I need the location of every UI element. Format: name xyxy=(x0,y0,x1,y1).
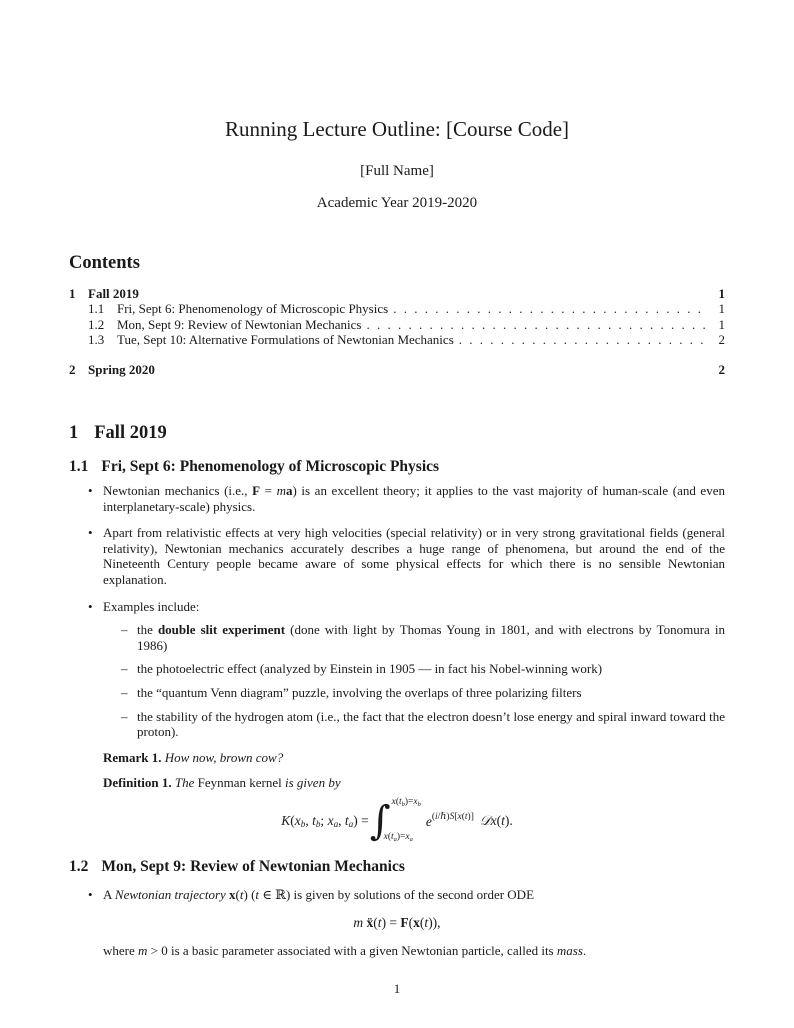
subsection-heading-1-1: 1.1Fri, Sept 6: Phenomenology of Microsc… xyxy=(69,457,725,476)
toc-label: Fall 2019 xyxy=(88,286,139,301)
page-title: Running Lecture Outline: [Course Code] xyxy=(69,116,725,142)
dash-icon: – xyxy=(121,661,128,677)
document-page: Running Lecture Outline: [Course Code] [… xyxy=(0,0,794,1028)
list-item: • Newtonian mechanics (i.e., F = ma) is … xyxy=(69,483,725,514)
continuation-paragraph: where m > 0 is a basic parameter associa… xyxy=(69,943,725,959)
integral: ∫ x(tb)=xb x(ta)=xa xyxy=(370,797,421,845)
toc-number: 2 xyxy=(69,362,88,377)
toc-number: 1.2 xyxy=(88,317,117,332)
feynman-kernel-equation: K(xb, tb; xa, ta) = ∫ x(tb)=xb x(ta)=xa … xyxy=(69,795,725,847)
paragraph-text: Newtonian mechanics (i.e., F = ma) is an… xyxy=(103,483,725,514)
integral-upper-limit: x(tb)=xb xyxy=(392,797,421,810)
subsection-title: Mon, Sept 9: Review of Newtonian Mechani… xyxy=(101,858,405,875)
subsection-number: 1.2 xyxy=(69,857,88,876)
subsection-number: 1.1 xyxy=(69,457,88,476)
bullet-icon: • xyxy=(88,599,93,615)
section-number: 1 xyxy=(69,422,78,444)
subsection-title: Fri, Sept 6: Phenomenology of Microscopi… xyxy=(101,458,439,475)
dash-icon: – xyxy=(121,709,128,725)
section-heading-fall-2019: 1Fall 2019 xyxy=(69,422,725,444)
toc-page-number: 1 xyxy=(713,286,725,301)
list-item: • Examples include: xyxy=(69,599,725,615)
toc-leader-dots: . . . . . . . . . . . . . . . . . . . . … xyxy=(366,317,708,332)
toc-entry-1-3[interactable]: 1.3 Tue, Sept 10: Alternative Formulatio… xyxy=(69,332,725,347)
bullet-icon: • xyxy=(88,525,93,541)
toc-leader-dots: . . . . . . . . . . . . . . . . . . . . … xyxy=(459,332,708,347)
toc-label: Fri, Sept 6: Phenomenology of Microscopi… xyxy=(117,301,388,316)
page-content: Running Lecture Outline: [Course Code] [… xyxy=(69,0,725,958)
toc-entry-1-1[interactable]: 1.1 Fri, Sept 6: Phenomenology of Micros… xyxy=(69,301,725,316)
list-item: • A Newtonian trajectory x(t) (t ∈ ℝ) is… xyxy=(69,887,725,903)
toc-number: 1 xyxy=(69,286,88,301)
toc-page-number: 2 xyxy=(713,362,725,377)
doc-author: [Full Name] xyxy=(69,162,725,180)
toc-number: 1.3 xyxy=(88,332,117,347)
integral-lower-limit: x(ta)=xa xyxy=(384,832,413,845)
integral-limits: x(tb)=xb x(ta)=xa xyxy=(391,797,421,845)
exponential-term: e(i/ℏ)S[x(t)] xyxy=(426,811,474,830)
newton-second-law-equation: m ẍ(t) = F(x(t)), xyxy=(69,915,725,931)
bullet-icon: • xyxy=(88,887,93,903)
equation-text: m ẍ(t) = F(x(t)), xyxy=(353,915,440,931)
paragraph-text: A Newtonian trajectory x(t) (t ∈ ℝ) is g… xyxy=(103,887,534,902)
paragraph-text: the photoelectric effect (analyzed by Ei… xyxy=(137,661,602,676)
page-number: 1 xyxy=(0,981,794,997)
toc-entry-1-2[interactable]: 1.2 Mon, Sept 9: Review of Newtonian Mec… xyxy=(69,317,725,332)
paragraph-text: the “quantum Venn diagram” puzzle, invol… xyxy=(137,685,582,700)
doc-date: Academic Year 2019-2020 xyxy=(69,194,725,212)
table-of-contents: 1 Fall 2019 1 1.1 Fri, Sept 6: Phenomeno… xyxy=(69,286,725,377)
toc-page-number: 1 xyxy=(713,317,725,332)
sub-list-item: – the double slit experiment (done with … xyxy=(69,622,725,653)
exp-superscript: (i/ℏ)S[x(t)] xyxy=(432,812,474,822)
remark-paragraph: Remark 1. How now, brown cow? xyxy=(69,750,725,766)
list-item: • Apart from relativistic effects at ver… xyxy=(69,525,725,587)
section-title: Fall 2019 xyxy=(94,423,166,443)
paragraph-text: Apart from relativistic effects at very … xyxy=(103,525,725,587)
contents-heading: Contents xyxy=(69,252,725,274)
sub-list-item: – the stability of the hydrogen atom (i.… xyxy=(69,709,725,740)
toc-page-number: 2 xyxy=(713,332,725,347)
toc-label: Tue, Sept 10: Alternative Formulations o… xyxy=(117,332,454,347)
paragraph-text: the stability of the hydrogen atom (i.e.… xyxy=(137,709,725,740)
toc-number: 1.1 xyxy=(88,301,117,316)
toc-label: Spring 2020 xyxy=(88,362,155,377)
sub-list-item: – the photoelectric effect (analyzed by … xyxy=(69,661,725,677)
toc-entry-fall-2019[interactable]: 1 Fall 2019 1 xyxy=(69,286,725,301)
dash-icon: – xyxy=(121,622,128,638)
bullet-icon: • xyxy=(88,483,93,499)
toc-entry-spring-2020[interactable]: 2 Spring 2020 2 xyxy=(69,362,725,377)
paragraph-text: the double slit experiment (done with li… xyxy=(137,622,725,653)
toc-label: Mon, Sept 9: Review of Newtonian Mechani… xyxy=(117,317,361,332)
toc-page-number: 1 xyxy=(713,301,725,316)
definition-paragraph: Definition 1. The Feynman kernel is give… xyxy=(69,775,725,791)
subsection-heading-1-2: 1.2Mon, Sept 9: Review of Newtonian Mech… xyxy=(69,857,725,876)
toc-leader-dots: . . . . . . . . . . . . . . . . . . . . … xyxy=(393,301,708,316)
path-integral-measure: 𝒟x(t). xyxy=(480,813,513,829)
sub-list-item: – the “quantum Venn diagram” puzzle, inv… xyxy=(69,685,725,701)
dash-icon: – xyxy=(121,685,128,701)
paragraph-text: Examples include: xyxy=(103,599,199,614)
equation-lhs: K(xb, tb; xa, ta) = xyxy=(281,813,369,829)
